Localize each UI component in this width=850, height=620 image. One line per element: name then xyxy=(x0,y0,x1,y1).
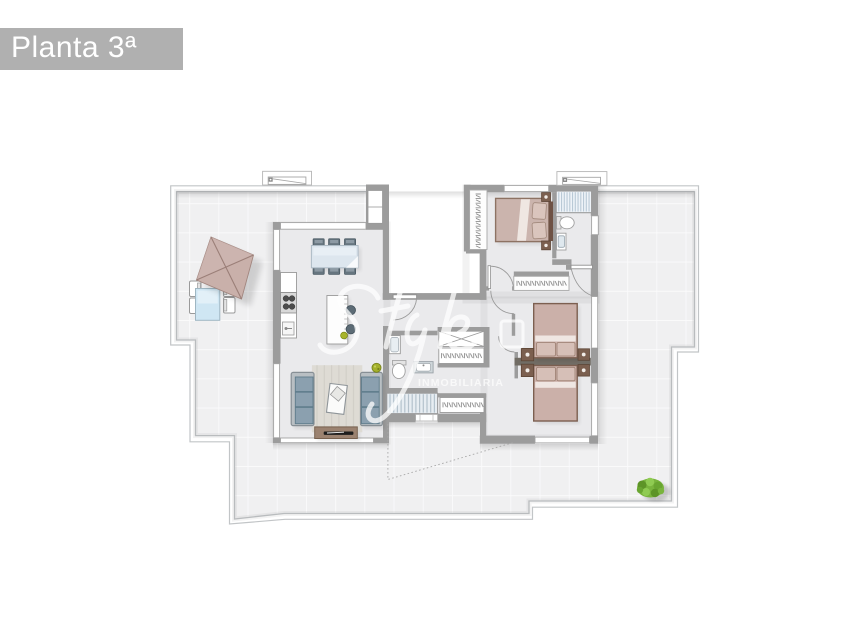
svg-text:INMOBILIARIA: INMOBILIARIA xyxy=(418,377,504,389)
